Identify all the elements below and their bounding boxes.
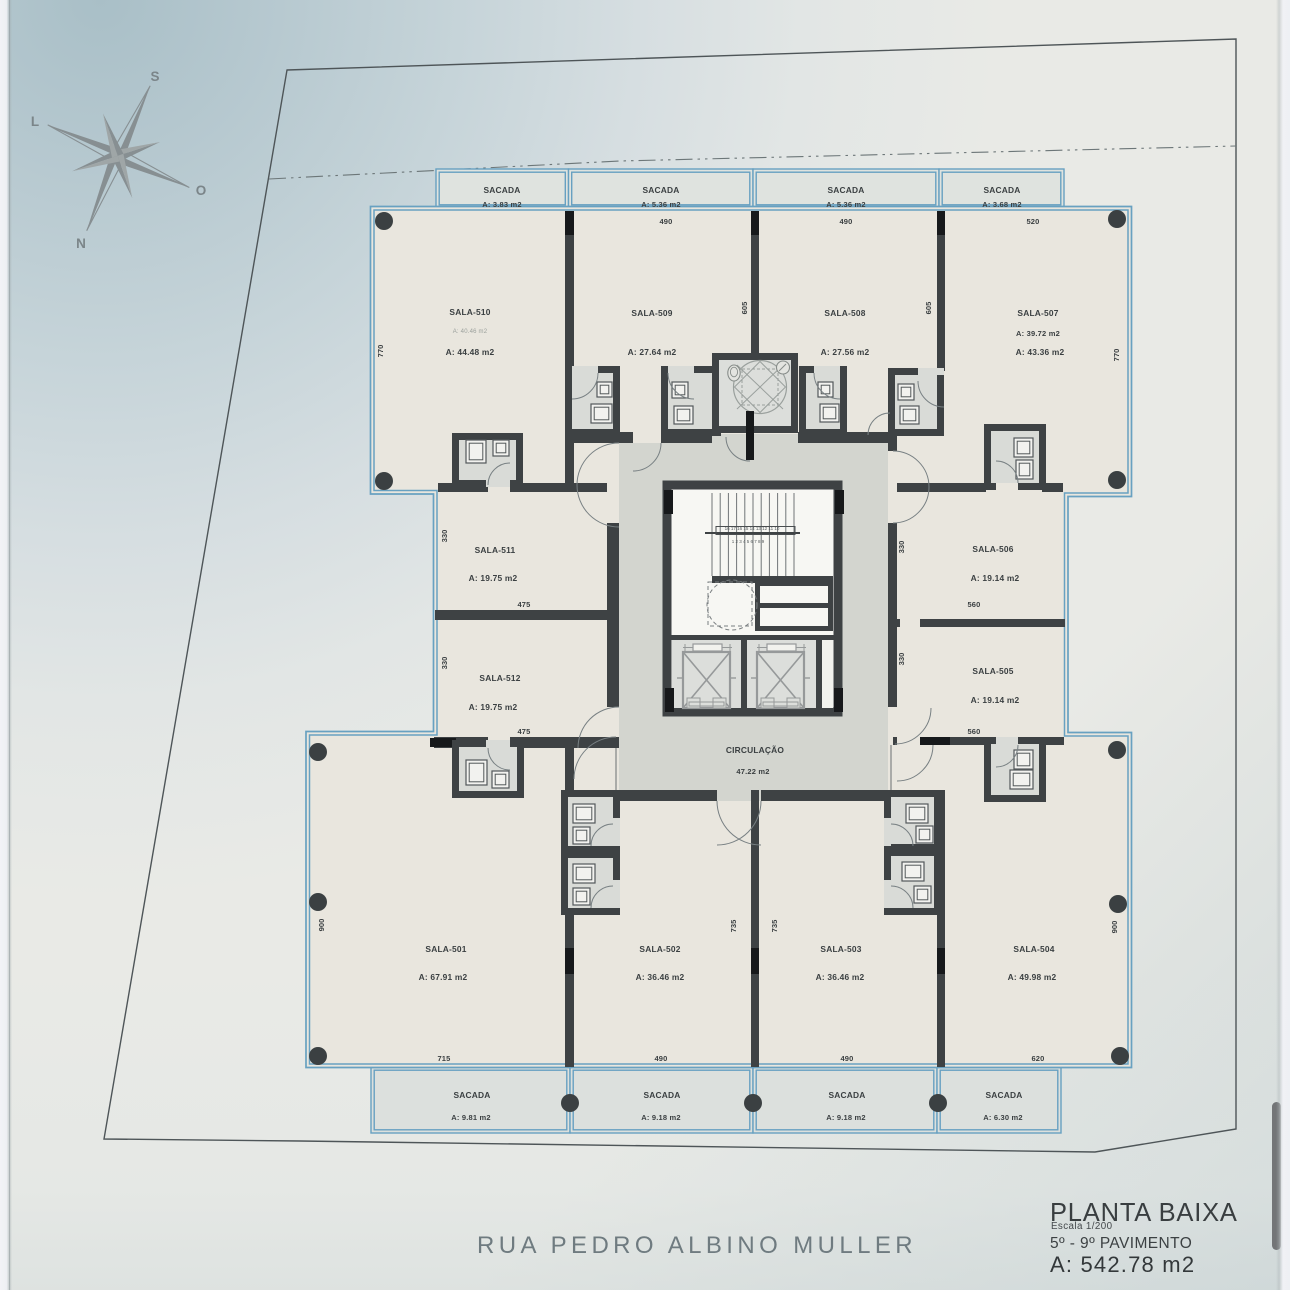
svg-text:S: S bbox=[150, 69, 159, 84]
svg-text:A: 39.72 m2: A: 39.72 m2 bbox=[1016, 329, 1060, 338]
svg-text:SALA-511: SALA-511 bbox=[475, 545, 516, 555]
svg-text:A: 9.18 m2: A: 9.18 m2 bbox=[826, 1113, 866, 1122]
svg-text:A: 49.98 m2: A: 49.98 m2 bbox=[1008, 972, 1057, 982]
svg-text:SALA-508: SALA-508 bbox=[824, 308, 865, 318]
svg-text:SALA-506: SALA-506 bbox=[972, 544, 1013, 554]
svg-text:900: 900 bbox=[317, 919, 326, 932]
svg-text:A: 43.36 m2: A: 43.36 m2 bbox=[1016, 347, 1065, 357]
svg-text:SALA-503: SALA-503 bbox=[820, 944, 861, 954]
svg-text:A: 542.78 m2: A: 542.78 m2 bbox=[1050, 1252, 1195, 1277]
svg-text:560: 560 bbox=[967, 727, 980, 736]
svg-text:A: 19.14 m2: A: 19.14 m2 bbox=[971, 573, 1020, 583]
svg-text:SACADA: SACADA bbox=[985, 1090, 1022, 1100]
svg-text:SALA-509: SALA-509 bbox=[631, 308, 672, 318]
svg-text:N: N bbox=[76, 236, 86, 251]
svg-text:SALA-507: SALA-507 bbox=[1017, 308, 1058, 318]
svg-text:330: 330 bbox=[897, 653, 906, 666]
svg-text:A: 44.48 m2: A: 44.48 m2 bbox=[446, 347, 495, 357]
svg-text:A: 19.14 m2: A: 19.14 m2 bbox=[971, 695, 1020, 705]
svg-text:A: 36.46 m2: A: 36.46 m2 bbox=[636, 972, 685, 982]
svg-text:A: 27.56 m2: A: 27.56 m2 bbox=[821, 347, 870, 357]
svg-text:A: 6.30 m2: A: 6.30 m2 bbox=[983, 1113, 1023, 1122]
svg-text:1 2 3 4 5 6 7 8 9: 1 2 3 4 5 6 7 8 9 bbox=[732, 539, 765, 544]
svg-text:A: 36.46 m2: A: 36.46 m2 bbox=[816, 972, 865, 982]
svg-text:735: 735 bbox=[729, 919, 738, 932]
svg-text:490: 490 bbox=[839, 217, 852, 226]
svg-text:900: 900 bbox=[1110, 921, 1119, 934]
svg-text:O: O bbox=[196, 183, 207, 198]
svg-text:RUA PEDRO ALBINO MULLER: RUA PEDRO ALBINO MULLER bbox=[477, 1232, 917, 1259]
svg-text:A: 5.36 m2: A: 5.36 m2 bbox=[826, 200, 866, 209]
svg-text:475: 475 bbox=[517, 600, 530, 609]
svg-text:A: 9.81 m2: A: 9.81 m2 bbox=[451, 1113, 491, 1122]
svg-text:490: 490 bbox=[654, 1054, 667, 1063]
svg-text:330: 330 bbox=[897, 541, 906, 554]
svg-text:47.22 m2: 47.22 m2 bbox=[736, 767, 769, 776]
svg-text:SACADA: SACADA bbox=[643, 1090, 680, 1100]
svg-text:SACADA: SACADA bbox=[827, 185, 864, 195]
svg-text:16 17 16 15 14 13 12 11 10: 16 17 16 15 14 13 12 11 10 bbox=[725, 526, 780, 531]
svg-text:SALA-505: SALA-505 bbox=[972, 666, 1013, 676]
svg-text:A: 27.64 m2: A: 27.64 m2 bbox=[628, 347, 677, 357]
svg-text:A: 9.18 m2: A: 9.18 m2 bbox=[641, 1113, 681, 1122]
svg-text:A: 5.36 m2: A: 5.36 m2 bbox=[641, 200, 681, 209]
svg-text:SACADA: SACADA bbox=[828, 1090, 865, 1100]
svg-text:SALA-504: SALA-504 bbox=[1013, 944, 1054, 954]
svg-text:SACADA: SACADA bbox=[983, 185, 1020, 195]
svg-text:SALA-510: SALA-510 bbox=[449, 307, 490, 317]
svg-text:490: 490 bbox=[659, 217, 672, 226]
svg-text:SACADA: SACADA bbox=[483, 185, 520, 195]
svg-text:A: 40.46 m2: A: 40.46 m2 bbox=[453, 329, 488, 335]
svg-text:770: 770 bbox=[376, 345, 385, 358]
svg-text:A: 19.75 m2: A: 19.75 m2 bbox=[469, 573, 518, 583]
svg-text:330: 330 bbox=[440, 530, 449, 543]
svg-text:5º - 9º PAVIMENTO: 5º - 9º PAVIMENTO bbox=[1050, 1235, 1192, 1252]
svg-text:L: L bbox=[31, 114, 39, 129]
svg-text:SALA-512: SALA-512 bbox=[479, 673, 520, 683]
svg-text:A: 19.75 m2: A: 19.75 m2 bbox=[469, 702, 518, 712]
svg-text:620: 620 bbox=[1031, 1054, 1044, 1063]
svg-text:330: 330 bbox=[440, 657, 449, 670]
svg-text:520: 520 bbox=[1026, 217, 1039, 226]
svg-text:SALA-502: SALA-502 bbox=[639, 944, 680, 954]
svg-text:715: 715 bbox=[437, 1054, 450, 1063]
svg-text:735: 735 bbox=[770, 919, 779, 932]
svg-text:560: 560 bbox=[967, 600, 980, 609]
svg-text:A: 67.91 m2: A: 67.91 m2 bbox=[419, 972, 468, 982]
svg-text:SALA-501: SALA-501 bbox=[425, 944, 466, 954]
svg-text:CIRCULAÇÃO: CIRCULAÇÃO bbox=[726, 745, 785, 755]
svg-text:SACADA: SACADA bbox=[453, 1090, 490, 1100]
svg-text:475: 475 bbox=[517, 727, 530, 736]
svg-text:605: 605 bbox=[740, 301, 749, 314]
svg-text:A: 3.68 m2: A: 3.68 m2 bbox=[982, 200, 1022, 209]
svg-text:SACADA: SACADA bbox=[642, 185, 679, 195]
svg-text:Escala 1/200: Escala 1/200 bbox=[1051, 1221, 1113, 1232]
svg-text:605: 605 bbox=[924, 301, 933, 314]
svg-text:770: 770 bbox=[1112, 349, 1121, 362]
svg-text:490: 490 bbox=[840, 1054, 853, 1063]
svg-text:A: 3.83 m2: A: 3.83 m2 bbox=[482, 200, 522, 209]
